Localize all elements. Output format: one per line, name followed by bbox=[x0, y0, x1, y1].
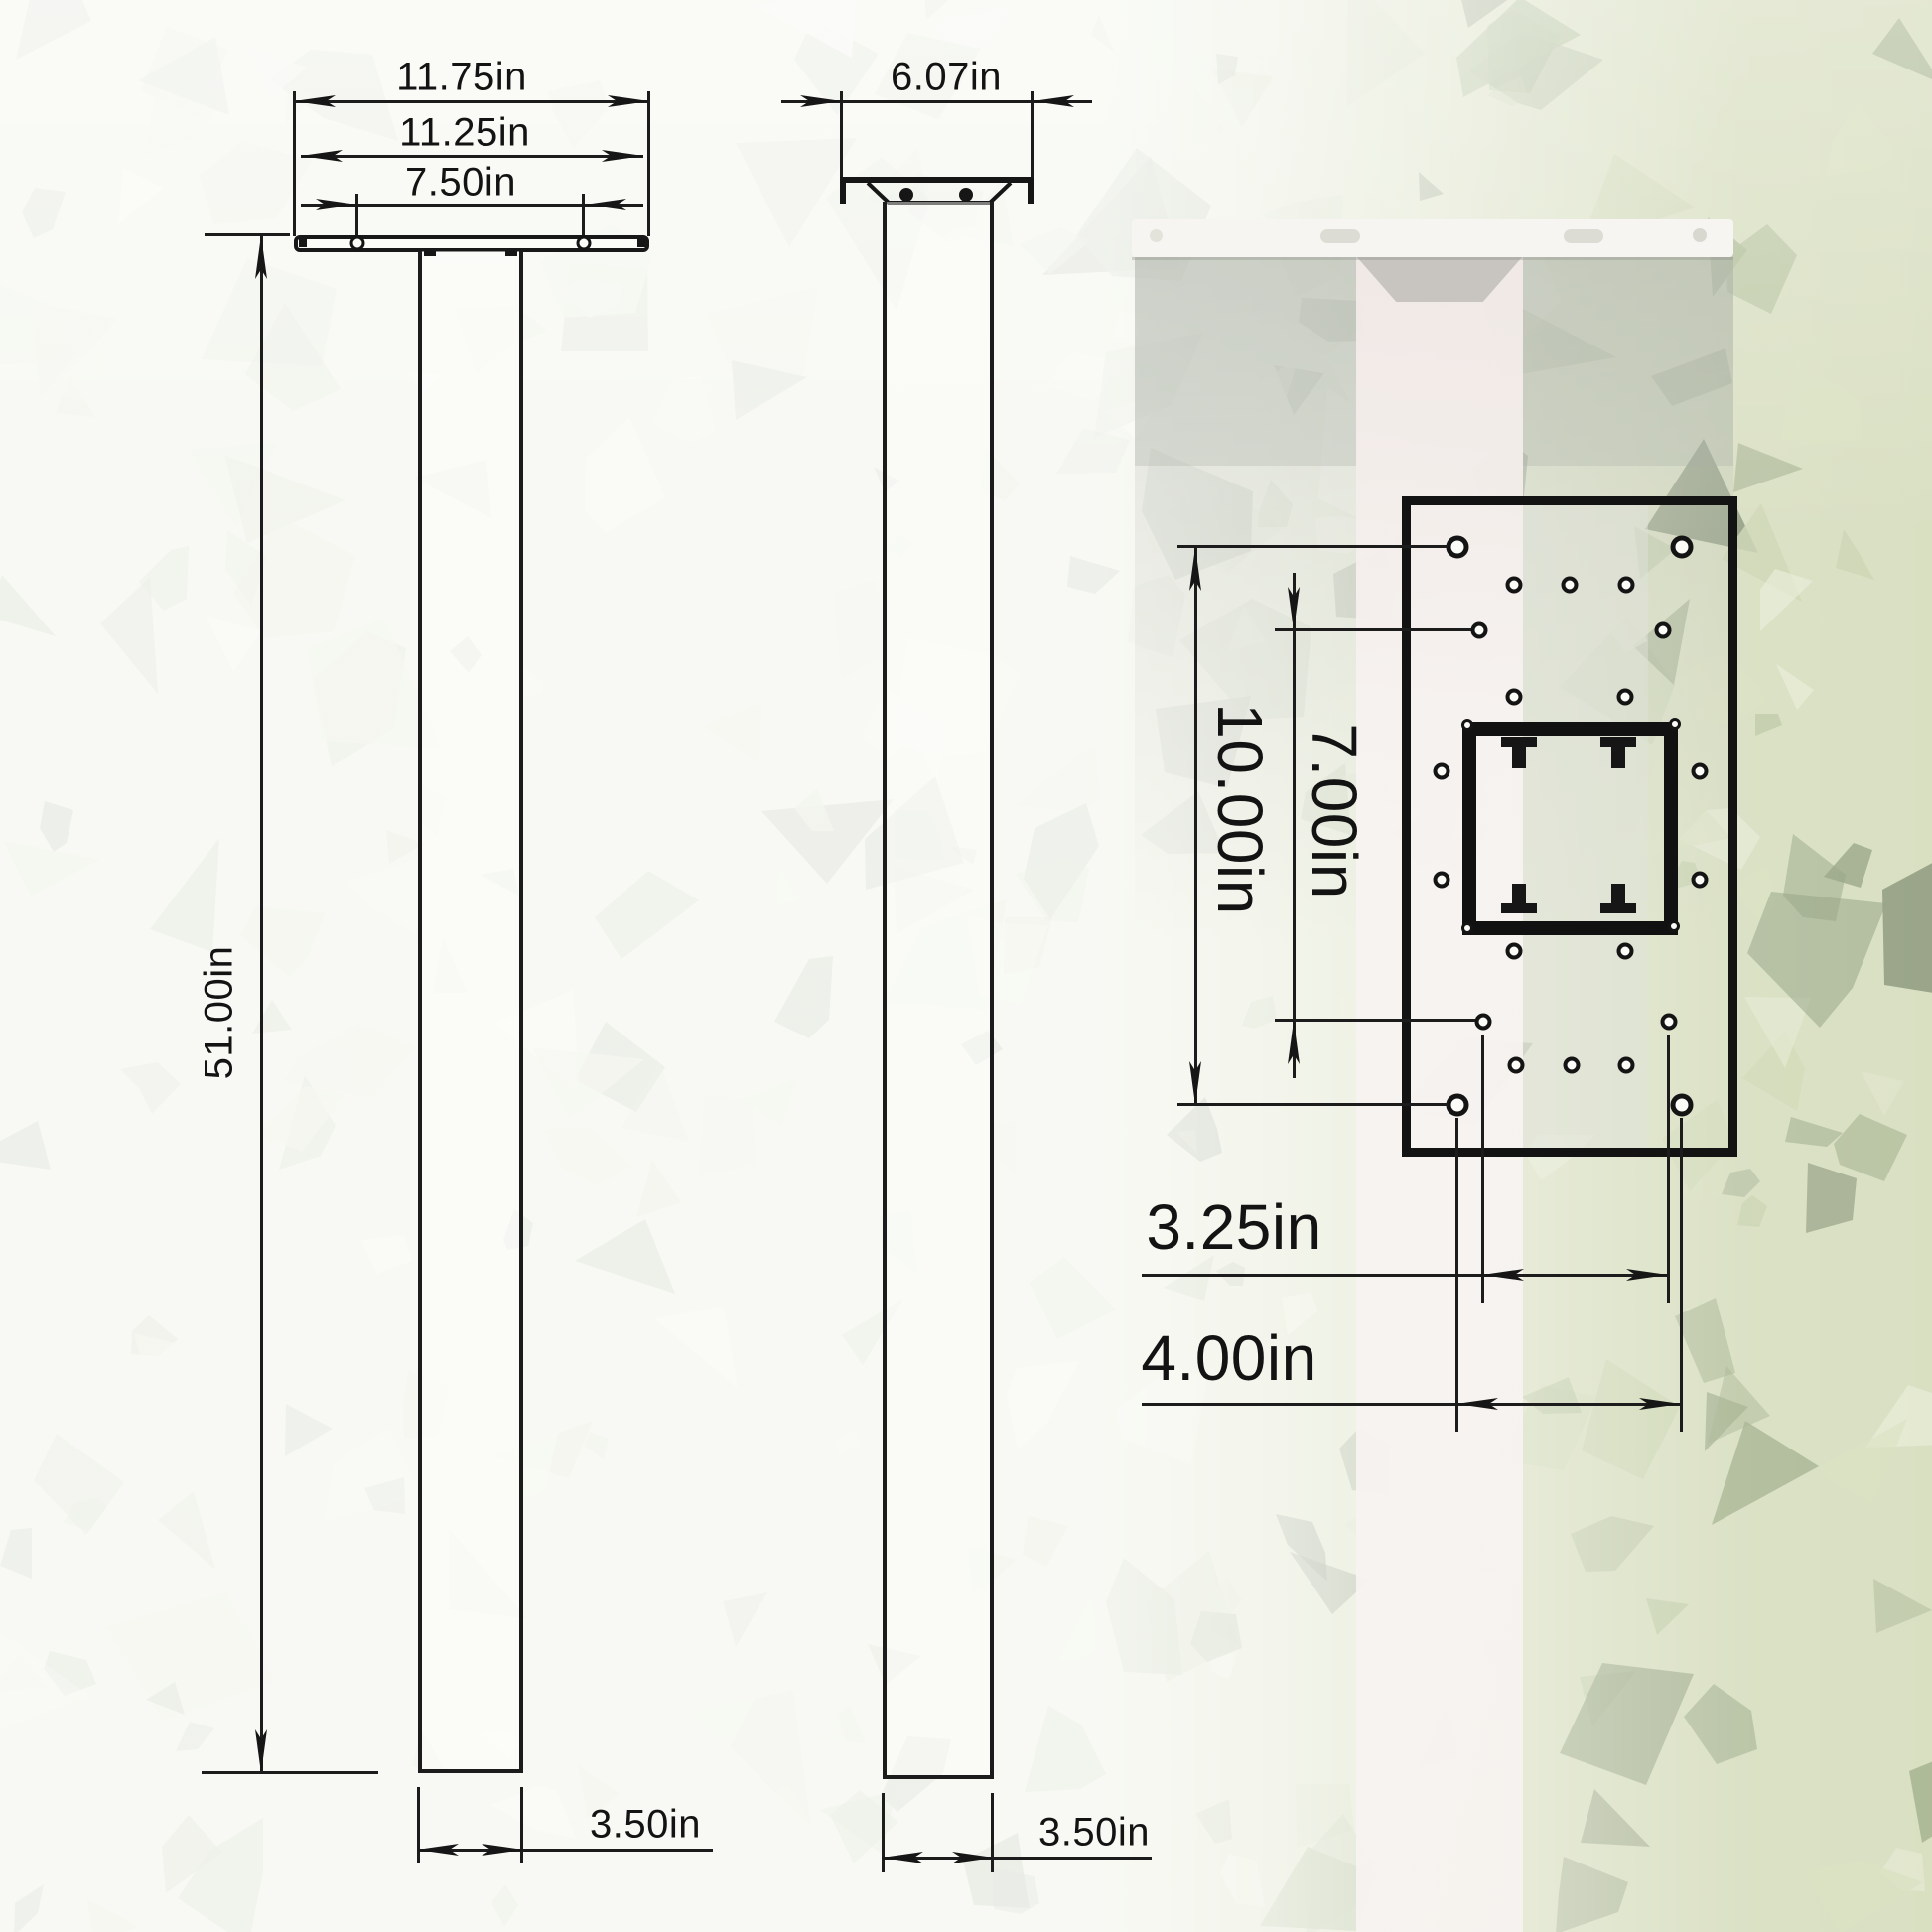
plate-hole bbox=[1434, 763, 1450, 780]
plate-hole bbox=[1655, 622, 1672, 639]
dim-label-side-plate-width: 6.07in bbox=[891, 56, 1002, 100]
dim-line bbox=[260, 235, 263, 1773]
plate-hole bbox=[1661, 1014, 1678, 1031]
bolt-stem bbox=[1611, 884, 1625, 907]
plate-hole bbox=[1506, 943, 1523, 960]
front-top-plate bbox=[294, 235, 649, 252]
dim-line bbox=[882, 1857, 1152, 1860]
dim-label-side-post-width: 3.50in bbox=[1038, 1811, 1150, 1856]
plate-corner-hole bbox=[1447, 536, 1469, 559]
bolt-stem bbox=[1512, 747, 1526, 768]
plate-corner-hole bbox=[1447, 1094, 1469, 1117]
drawing-layer: 11.75in 11.25in 7.50in bbox=[0, 0, 1932, 1932]
plate-hole bbox=[1692, 763, 1709, 780]
bolt-stem bbox=[1512, 884, 1526, 907]
dim-label-front-bolt-span: 7.50in bbox=[405, 161, 516, 206]
dim-line bbox=[294, 100, 649, 103]
plate-hole bbox=[1562, 577, 1579, 594]
dim-label-plate-span-wide: 4.00in bbox=[1141, 1321, 1316, 1395]
plate-inner-square bbox=[1462, 722, 1678, 935]
bolt-bar bbox=[1600, 737, 1636, 747]
plate-hole bbox=[1506, 689, 1523, 706]
plate-hole bbox=[1434, 872, 1450, 889]
plate-hole bbox=[1471, 622, 1488, 639]
dim-label-front-height: 51.00in bbox=[198, 946, 242, 1080]
plate-hole bbox=[1617, 943, 1634, 960]
dim-label-plate-outer-hole-height: 10.00in bbox=[1203, 703, 1277, 914]
dim-label-front-post-width: 3.50in bbox=[590, 1803, 701, 1848]
dim-line bbox=[417, 1849, 713, 1852]
bolt-bar bbox=[1501, 737, 1537, 747]
plate-hole bbox=[1475, 1014, 1492, 1031]
dim-label-front-plate-width: 11.25in bbox=[399, 111, 530, 156]
plate-hole bbox=[1506, 577, 1523, 594]
plate-hole bbox=[1508, 1057, 1525, 1074]
plate-hole bbox=[1618, 1057, 1635, 1074]
bolt-stem bbox=[1611, 747, 1625, 768]
dim-label-plate-span-narrow: 3.25in bbox=[1146, 1190, 1321, 1264]
dim-line bbox=[1142, 1403, 1683, 1406]
plate-hole bbox=[1617, 689, 1634, 706]
dimension-diagram: 11.75in 11.25in 7.50in bbox=[0, 0, 1932, 1932]
front-post-body bbox=[418, 251, 523, 1773]
plate-corner-hole bbox=[1671, 1094, 1694, 1117]
plate-corner-hole bbox=[1671, 536, 1694, 559]
dim-line bbox=[1293, 573, 1296, 1078]
dim-label-plate-inner-hole-height: 7.00in bbox=[1298, 723, 1371, 898]
side-post-body bbox=[883, 202, 994, 1779]
plate-hole bbox=[1564, 1057, 1581, 1074]
dim-label-front-outer-width: 11.75in bbox=[396, 56, 527, 100]
plate-hole bbox=[1618, 577, 1635, 594]
dim-line bbox=[1142, 1274, 1669, 1277]
plate-hole bbox=[1692, 872, 1709, 889]
dim-line bbox=[1194, 547, 1197, 1105]
